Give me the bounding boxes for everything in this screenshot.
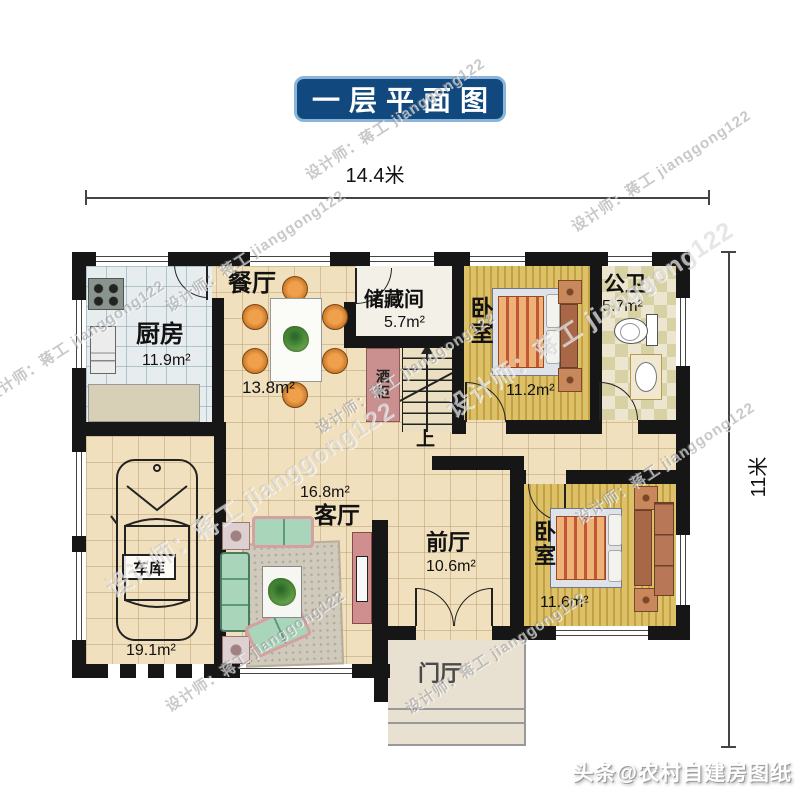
wall bbox=[452, 266, 464, 432]
wall bbox=[506, 420, 602, 434]
page-title: 一层平面图 bbox=[294, 76, 506, 122]
wall bbox=[525, 252, 608, 266]
window bbox=[72, 300, 86, 368]
dimension-tick bbox=[85, 190, 87, 205]
wall bbox=[72, 664, 92, 678]
dining-chair-icon bbox=[242, 348, 268, 374]
wall bbox=[434, 252, 470, 266]
dining-chair-icon bbox=[322, 348, 348, 374]
dimension-width-label: 14.4米 bbox=[320, 160, 430, 186]
sofa-icon bbox=[220, 552, 250, 632]
bedroom2-area-label: 11.6m² bbox=[540, 594, 589, 612]
bed-blanket bbox=[556, 516, 606, 580]
dimension-height-line bbox=[728, 252, 730, 748]
wall bbox=[566, 470, 690, 484]
wine-cabinet: 酒柜 bbox=[366, 348, 400, 422]
tv-icon bbox=[356, 556, 368, 602]
window bbox=[676, 535, 690, 605]
bedroom1-area-label: 11.2m² bbox=[506, 382, 555, 400]
kitchen-area-label: 11.9m² bbox=[142, 352, 191, 370]
window bbox=[608, 252, 652, 266]
brand-watermark: 头条@农村自建房图纸 bbox=[500, 757, 792, 787]
dimension-tick bbox=[721, 746, 736, 748]
window bbox=[470, 252, 525, 266]
watermark: 设计师：蒋工 jianggong122 bbox=[567, 105, 754, 237]
window bbox=[676, 298, 690, 366]
dimension-tick bbox=[721, 251, 736, 253]
door-leaf bbox=[599, 382, 601, 420]
dimension-height-label: 11米 bbox=[745, 445, 767, 509]
dining-label: 餐厅 bbox=[228, 271, 276, 296]
bed-blanket bbox=[498, 296, 544, 368]
car-icon bbox=[107, 452, 207, 648]
wall bbox=[648, 626, 690, 640]
window bbox=[96, 252, 168, 266]
dimension-tick bbox=[708, 190, 710, 205]
porch-step bbox=[388, 722, 524, 724]
wall bbox=[388, 626, 416, 640]
bathroom-label: 公卫 bbox=[604, 274, 646, 296]
storage-label: 储藏间 bbox=[364, 290, 424, 311]
wall bbox=[676, 366, 690, 535]
toilet-bowl bbox=[620, 323, 640, 341]
window bbox=[370, 252, 434, 266]
wall bbox=[330, 252, 370, 266]
basin-icon bbox=[635, 362, 657, 392]
fridge-icon bbox=[90, 326, 116, 374]
door-leaf bbox=[415, 588, 417, 626]
wall bbox=[590, 420, 600, 434]
nightstand bbox=[558, 368, 582, 392]
porch-step bbox=[388, 708, 524, 710]
door-leaf bbox=[206, 264, 208, 300]
door-leaf bbox=[465, 382, 467, 422]
window bbox=[250, 252, 330, 266]
wall bbox=[510, 470, 526, 484]
garage-label: 车库 bbox=[122, 554, 176, 580]
pillow bbox=[608, 550, 622, 582]
bedroom2-label: 卧室 bbox=[532, 520, 555, 568]
dining-chair-icon bbox=[322, 304, 348, 330]
storage-area-label: 5.7m² bbox=[384, 314, 425, 332]
headboard bbox=[634, 510, 652, 586]
living-area-label: 16.8m² bbox=[300, 484, 350, 502]
stairs-up-label: 上 bbox=[416, 430, 435, 450]
garage-door bbox=[92, 664, 212, 678]
wall bbox=[86, 422, 226, 436]
wall bbox=[72, 368, 86, 452]
front-hall-area-label: 10.6m² bbox=[426, 558, 476, 576]
wall bbox=[492, 626, 556, 640]
living-label: 客厅 bbox=[314, 503, 360, 527]
wall bbox=[72, 536, 86, 552]
wall bbox=[212, 298, 224, 424]
door-leaf bbox=[355, 268, 357, 304]
stairs-direction-line bbox=[426, 350, 428, 432]
bedroom1-label: 卧室 bbox=[468, 296, 492, 346]
dimension-width-line bbox=[86, 197, 710, 199]
pillow bbox=[546, 330, 560, 364]
pillow bbox=[608, 514, 622, 546]
plant-icon bbox=[283, 326, 309, 352]
wall bbox=[344, 336, 456, 348]
window bbox=[72, 552, 86, 640]
plant-icon bbox=[268, 578, 296, 606]
wall bbox=[72, 252, 86, 300]
end-table bbox=[222, 636, 250, 664]
end-table bbox=[222, 522, 250, 550]
floor-plan-canvas: 一层平面图 14.4米 11米 酒柜 bbox=[0, 0, 800, 800]
front-hall-label: 前厅 bbox=[426, 531, 470, 554]
kitchen-counter bbox=[88, 384, 200, 422]
wall bbox=[432, 456, 524, 470]
garage-area-label: 19.1m² bbox=[126, 642, 176, 660]
wall bbox=[638, 420, 690, 434]
wall bbox=[676, 252, 690, 298]
kitchen-label: 厨房 bbox=[136, 322, 184, 347]
nightstand bbox=[558, 280, 582, 304]
dining-area-label: 13.8m² bbox=[242, 378, 295, 398]
wardrobe bbox=[654, 502, 674, 596]
porch-step bbox=[388, 744, 524, 746]
porch-label: 门厅 bbox=[418, 662, 462, 685]
stove-icon bbox=[88, 278, 124, 310]
wall bbox=[510, 470, 524, 626]
wall bbox=[372, 520, 388, 664]
sofa-icon bbox=[252, 516, 314, 548]
wall bbox=[212, 664, 240, 678]
dining-chair-icon bbox=[242, 304, 268, 330]
wall bbox=[452, 420, 466, 434]
window bbox=[72, 452, 86, 536]
porch-floor bbox=[388, 640, 526, 746]
bathroom-area-label: 5.7m² bbox=[602, 298, 643, 316]
door-leaf bbox=[491, 588, 493, 626]
headboard bbox=[560, 304, 578, 368]
window bbox=[556, 626, 648, 640]
